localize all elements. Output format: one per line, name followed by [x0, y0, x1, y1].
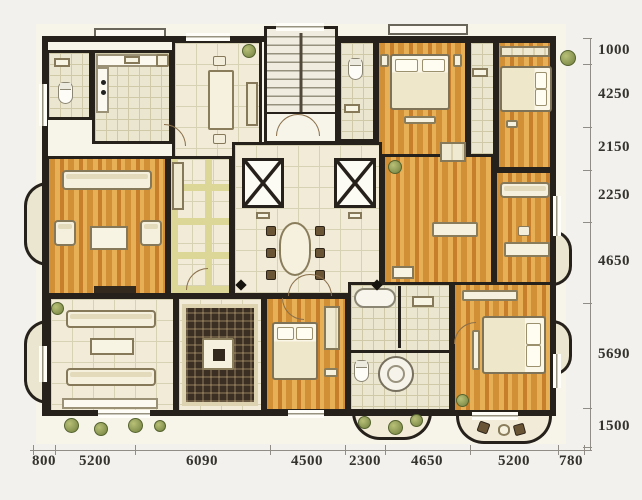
floor-plan: [36, 24, 566, 444]
tick: [584, 445, 585, 455]
bathroom-top-middle: [338, 40, 376, 142]
sofa: [500, 182, 550, 198]
dim-bottom-3: 4500: [291, 453, 323, 470]
table-decor: [213, 349, 225, 361]
dim-bottom-1: 5200: [79, 453, 111, 470]
dining-chair: [315, 226, 325, 236]
plant: [242, 44, 256, 58]
bed: [500, 66, 552, 112]
elevator: [242, 158, 284, 208]
plant: [64, 418, 79, 433]
dim-right-3: 2250: [598, 187, 630, 204]
refrigerator: [156, 54, 169, 67]
dim-right-0: 1000: [598, 42, 630, 59]
window: [288, 410, 324, 418]
toilet: [348, 58, 363, 80]
nightstand: [380, 54, 389, 67]
plant: [51, 302, 64, 315]
dining-chair: [315, 248, 325, 258]
elevator-call-panel: [348, 212, 362, 219]
dim-right-4: 4650: [598, 253, 630, 270]
stool: [506, 120, 518, 128]
tick: [270, 445, 271, 455]
plant: [358, 416, 371, 429]
dining-chair: [266, 270, 276, 280]
floor-plan-image: 1000 4250 2150 2250 4650 5690 1500 800 5…: [0, 0, 642, 500]
bed: [272, 322, 318, 380]
sofa: [62, 170, 152, 190]
partition-wall: [398, 286, 401, 348]
bathtub: [354, 288, 396, 308]
tv-cabinet: [94, 286, 136, 293]
kitchen-sink: [124, 56, 140, 64]
dim-bottom-6: 5200: [498, 453, 530, 470]
tick: [583, 64, 592, 65]
dresser: [462, 290, 518, 301]
tick: [583, 170, 592, 171]
tick: [583, 38, 592, 39]
tick: [135, 445, 136, 455]
awning-north: [388, 24, 468, 35]
nightstand: [453, 54, 462, 67]
bed: [482, 316, 546, 374]
coffee-table: [90, 226, 128, 250]
plant: [456, 394, 469, 407]
window: [553, 354, 561, 388]
balcony-table: [498, 424, 510, 436]
tick: [583, 408, 592, 409]
plant: [410, 414, 423, 427]
plant: [560, 50, 576, 66]
tick: [583, 222, 592, 223]
dining-table-oval: [279, 222, 311, 276]
bay-window-west: [24, 182, 48, 266]
toilet: [58, 82, 73, 104]
chair: [213, 134, 226, 144]
dim-bottom-2: 6090: [186, 453, 218, 470]
tick: [345, 445, 346, 455]
desk: [504, 242, 550, 257]
dim-bottom-5: 4650: [411, 453, 443, 470]
coffee-table: [90, 338, 134, 355]
stove-burner: [101, 90, 106, 95]
bathroom-sink: [472, 68, 488, 77]
bed: [390, 54, 450, 110]
bathroom-sink: [344, 104, 360, 113]
washing-machine: [378, 356, 414, 392]
chair: [213, 56, 226, 66]
tick: [470, 445, 471, 455]
center-table: [202, 338, 234, 370]
dim-right-6: 1500: [598, 418, 630, 435]
side-table: [392, 266, 414, 279]
sofa: [66, 310, 156, 328]
armchair: [54, 220, 76, 246]
awning-north: [94, 28, 166, 39]
tick: [385, 445, 386, 455]
dimension-line-bottom: [30, 450, 592, 451]
planter-bench: [62, 398, 158, 409]
plant: [128, 418, 143, 433]
dining-table-long: [208, 70, 234, 130]
dimension-line-right: [590, 38, 591, 450]
armchair: [140, 220, 162, 246]
desk-chair: [518, 226, 530, 236]
bathroom-northeast: [468, 40, 496, 170]
window: [98, 410, 150, 418]
window: [553, 196, 561, 236]
wardrobe: [500, 46, 550, 57]
elevator: [334, 158, 376, 208]
dim-bottom-0: 800: [32, 453, 56, 470]
wardrobe: [440, 142, 466, 162]
partition-wall: [351, 350, 449, 353]
dining-chair: [266, 226, 276, 236]
wardrobe: [324, 306, 340, 350]
tick: [583, 127, 592, 128]
stool: [324, 368, 338, 377]
bathroom-sink: [412, 296, 434, 307]
console-table: [432, 222, 478, 237]
window: [39, 346, 47, 382]
plant: [154, 420, 166, 432]
plant: [388, 420, 403, 435]
window: [276, 23, 324, 31]
closet: [172, 162, 184, 210]
window: [186, 33, 230, 41]
tick: [583, 303, 592, 304]
sideboard: [246, 82, 258, 126]
sofa: [66, 368, 156, 386]
dim-bottom-7: 780: [559, 453, 583, 470]
bathroom-sink: [54, 58, 70, 67]
window: [39, 84, 47, 126]
plant: [94, 422, 108, 436]
window: [472, 412, 518, 420]
dim-right-2: 2150: [598, 139, 630, 156]
dim-bottom-4: 2300: [349, 453, 381, 470]
dim-right-1: 4250: [598, 86, 630, 103]
stove-burner: [101, 80, 106, 85]
bed-bench: [404, 116, 436, 124]
dim-right-5: 5690: [598, 346, 630, 363]
toilet: [354, 360, 369, 382]
elevator-call-panel: [256, 212, 270, 219]
plant: [388, 160, 402, 174]
dining-chair: [266, 248, 276, 258]
